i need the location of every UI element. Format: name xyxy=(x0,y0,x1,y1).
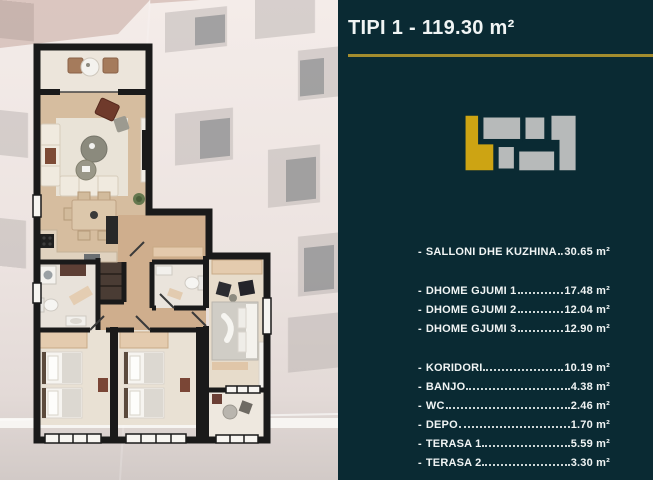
room-label: SALLONI DHE KUZHINA xyxy=(426,246,557,258)
dotted-leader xyxy=(483,369,563,371)
room-area: 12.90 m² xyxy=(564,323,610,335)
room-label: DHOME GJUMI 3 xyxy=(426,323,517,335)
dotted-leader xyxy=(459,426,570,428)
dotted-leader xyxy=(482,445,569,447)
list-bullet: - xyxy=(418,323,422,335)
list-bullet: - xyxy=(418,285,422,297)
room-list-item: - WC 2.46 m² xyxy=(418,393,610,412)
list-bullet: - xyxy=(418,304,422,316)
floor-plan xyxy=(0,0,338,480)
room-area: 17.48 m² xyxy=(564,285,610,297)
room-area: 30.65 m² xyxy=(564,246,610,258)
accent-divider xyxy=(348,54,653,57)
room-list-item: - TERASA 2 3.30 m² xyxy=(418,450,610,469)
unit-title: TIPI 1 - 119.30 m² xyxy=(348,16,653,40)
terrace-1-furniture xyxy=(68,58,118,76)
room-list-item: - DHOME GJUMI 3 12.90 m² xyxy=(418,316,610,335)
room-area: 12.04 m² xyxy=(564,304,610,316)
list-bullet: - xyxy=(418,381,422,393)
room-list-item: - SALLONI DHE KUZHINA 30.65 m² xyxy=(418,239,610,258)
room-label: TERASA 2 xyxy=(426,457,482,469)
dotted-leader xyxy=(518,330,564,332)
building-footprint-unit-locator-icon xyxy=(455,109,579,177)
dotted-leader xyxy=(446,407,570,409)
room-label: DEPO xyxy=(426,419,458,431)
list-bullet: - xyxy=(418,457,422,469)
room-label: DHOME GJUMI 2 xyxy=(426,304,517,316)
room-area: 10.19 m² xyxy=(564,362,610,374)
dotted-leader xyxy=(466,388,569,390)
corridor-console xyxy=(153,247,203,257)
list-bullet: - xyxy=(418,400,422,412)
room-area: 4.38 m² xyxy=(571,381,610,393)
list-bullet: - xyxy=(418,438,422,450)
room-area: 3.30 m² xyxy=(571,457,610,469)
room-label: WC xyxy=(426,400,445,412)
room-list-item: - BANJO 4.38 m² xyxy=(418,374,610,393)
floor-plan-pane xyxy=(0,0,338,480)
room-list: - SALLONI DHE KUZHINA 30.65 m² - DHOME G… xyxy=(348,239,653,469)
info-panel: TIPI 1 - 119.30 m² - SALLONI DHE KUZHINA… xyxy=(338,0,653,480)
dotted-leader xyxy=(558,253,564,255)
list-bullet: - xyxy=(418,362,422,374)
list-bullet: - xyxy=(418,246,422,258)
dotted-leader xyxy=(482,464,569,466)
room-label: DHOME GJUMI 1 xyxy=(426,285,517,297)
room-label: KORIDORI xyxy=(426,362,483,374)
room-label: TERASA 1 xyxy=(426,438,482,450)
room-area: 1.70 m² xyxy=(571,419,610,431)
storage-depo xyxy=(98,262,124,302)
room-list-item: - DHOME GJUMI 1 17.48 m² xyxy=(418,278,610,297)
page: TIPI 1 - 119.30 m² - SALLONI DHE KUZHINA… xyxy=(0,0,653,480)
list-bullet: - xyxy=(418,419,422,431)
room-list-item: - TERASA 1 5.59 m² xyxy=(418,431,610,450)
dotted-leader xyxy=(518,311,564,313)
dotted-leader xyxy=(518,292,564,294)
room-label: BANJO xyxy=(426,381,466,393)
room-area: 2.46 m² xyxy=(571,400,610,412)
room-area: 5.59 m² xyxy=(571,438,610,450)
room-list-item: - KORIDORI 10.19 m² xyxy=(418,355,610,374)
room-list-item: - DHOME GJUMI 2 12.04 m² xyxy=(418,297,610,316)
room-list-item: - DEPO 1.70 m² xyxy=(418,412,610,431)
